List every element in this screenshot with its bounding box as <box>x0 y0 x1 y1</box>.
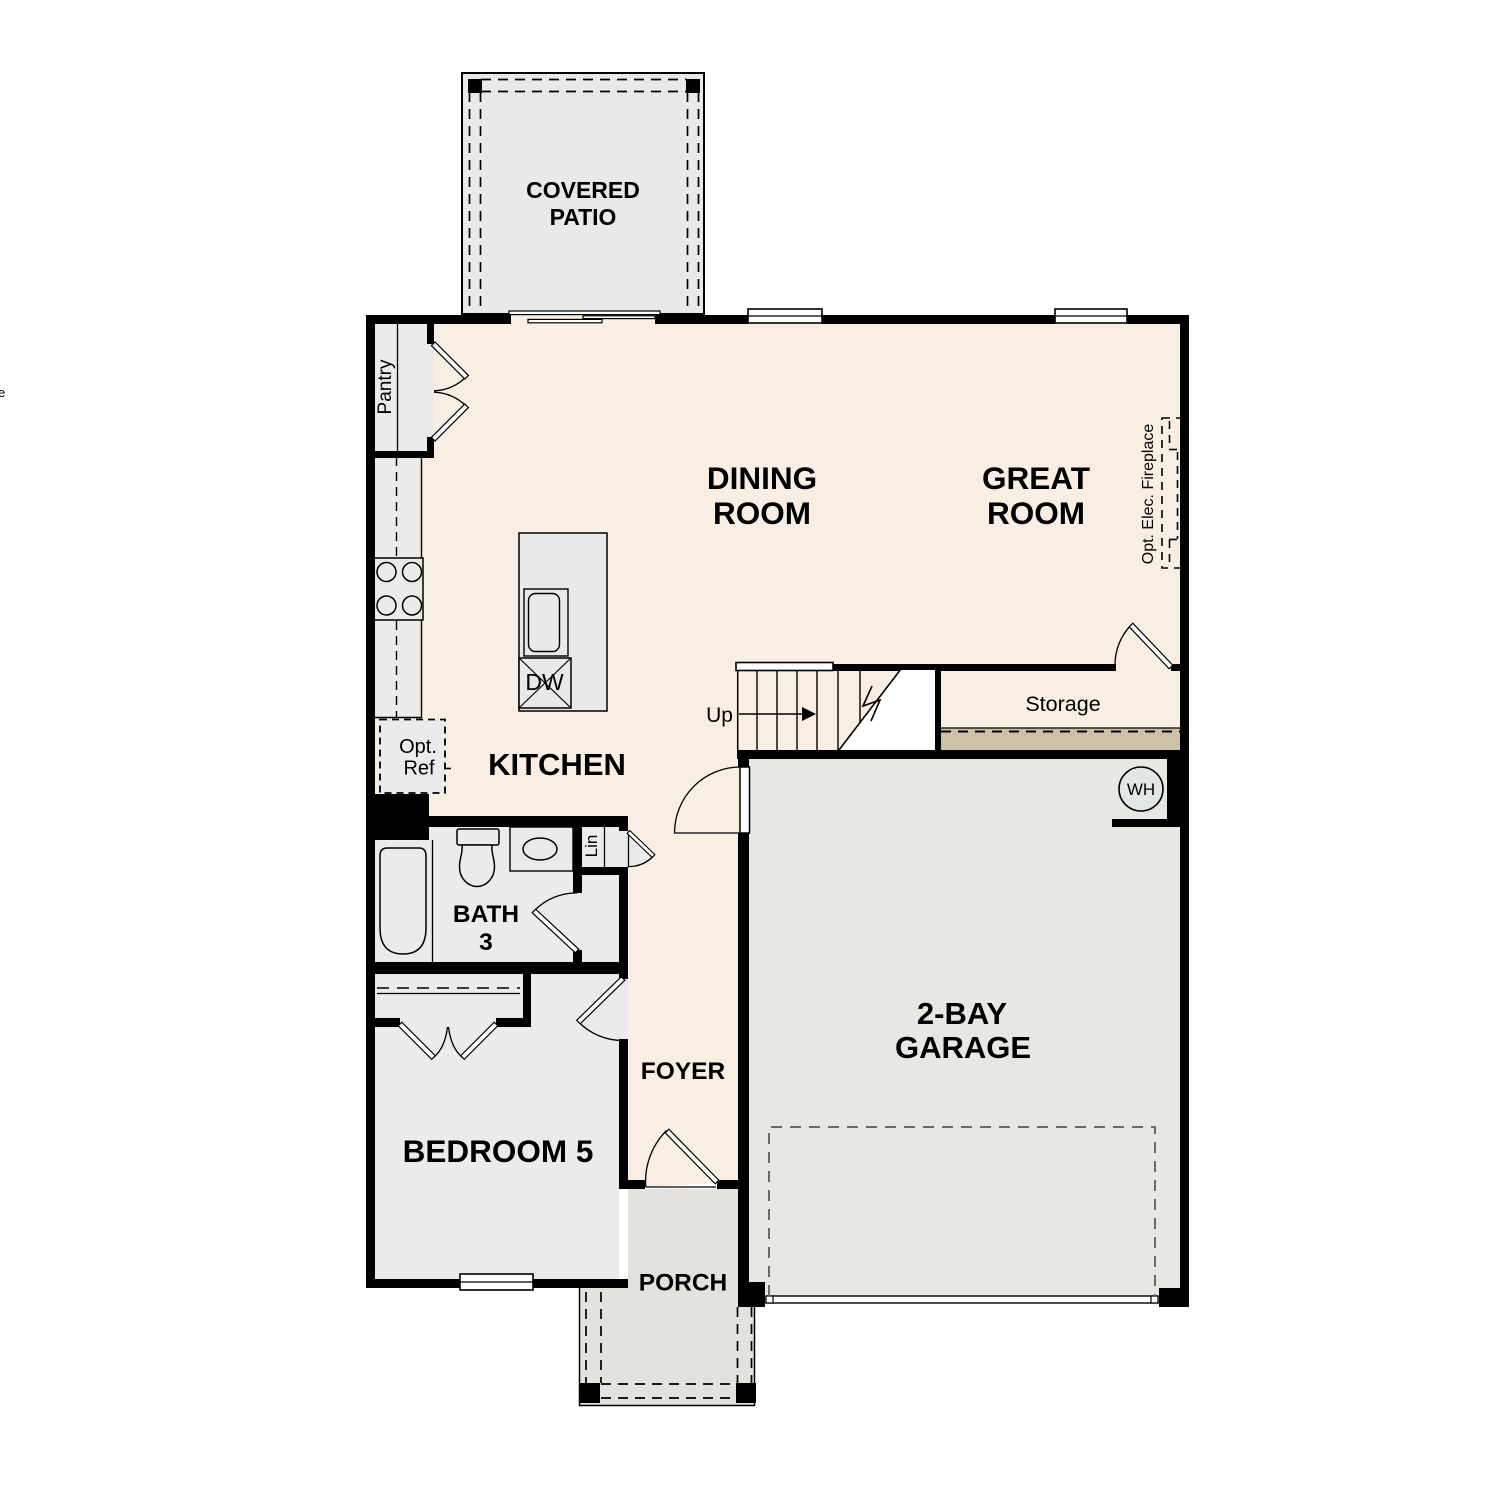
svg-text:Up: Up <box>706 704 733 727</box>
svg-text:GARAGE: GARAGE <box>895 1030 1031 1065</box>
svg-text:WH: WH <box>1127 780 1155 799</box>
svg-text:Lin: Lin <box>582 835 601 858</box>
svg-text:e: e <box>0 385 5 400</box>
svg-text:2-BAY: 2-BAY <box>917 996 1007 1031</box>
svg-text:GREAT: GREAT <box>982 460 1090 496</box>
svg-text:ROOM: ROOM <box>987 495 1085 531</box>
svg-text:Pantry: Pantry <box>375 359 396 414</box>
svg-text:Opt.: Opt. <box>399 736 437 758</box>
svg-text:3: 3 <box>479 929 493 956</box>
svg-text:BEDROOM 5: BEDROOM 5 <box>403 1133 594 1169</box>
svg-text:DW: DW <box>525 669 564 695</box>
svg-text:Opt. Elec. Fireplace: Opt. Elec. Fireplace <box>1140 424 1157 565</box>
svg-text:ROOM: ROOM <box>713 495 811 531</box>
svg-text:Storage: Storage <box>1025 692 1100 716</box>
svg-text:COVERED: COVERED <box>526 177 640 203</box>
svg-text:BATH: BATH <box>453 901 519 928</box>
svg-text:DINING: DINING <box>707 460 817 496</box>
svg-text:PORCH: PORCH <box>639 1270 727 1297</box>
svg-text:FOYER: FOYER <box>641 1058 726 1085</box>
svg-text:Ref: Ref <box>403 758 435 780</box>
svg-text:KITCHEN: KITCHEN <box>488 747 626 782</box>
svg-text:PATIO: PATIO <box>550 204 617 230</box>
